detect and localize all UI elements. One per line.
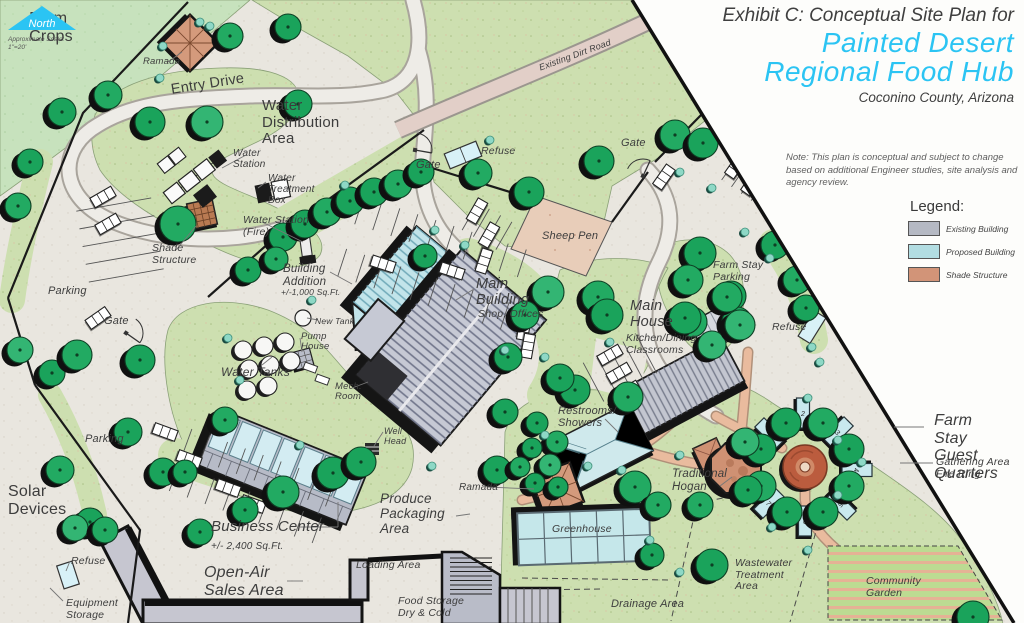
shade-structure-swatch [908,267,940,282]
project-name-line1: Painted Desert [614,28,1014,57]
project-location: Coconino County, Arizona [614,91,1014,105]
greenhouse-structure [511,503,653,566]
legend: Legend: Existing Building Proposed Build… [876,198,1015,290]
scale-value: 1"=20' [8,44,27,51]
exhibit-title: Exhibit C: Conceptual Site Plan for [614,6,1014,26]
legend-label-existing: Existing Building [946,224,1008,234]
legend-label-proposed: Proposed Building [946,247,1015,257]
north-label: North [29,18,56,30]
title-block: Exhibit C: Conceptual Site Plan for Pain… [614,6,1014,105]
project-name-line2: Regional Food Hub [614,57,1014,86]
legend-item-shade: Shade Structure [876,267,1015,282]
legend-item-existing: Existing Building [876,221,1015,236]
scale-label: Approximate Scale: [7,36,65,43]
cabin-number-2: 2 [800,411,805,418]
site-plan-canvas: 1234567 Farm CropsRamadaEntry DriveWater… [0,0,1024,623]
disclaimer-note: Note: This plan is conceptual and subjec… [786,152,1024,190]
existing-building-swatch [908,221,940,236]
north-arrow: North Approximate Scale: 1"=20' [0,0,95,60]
legend-heading: Legend: [910,198,1015,215]
legend-item-proposed: Proposed Building [876,244,1015,259]
legend-label-shade: Shade Structure [946,270,1007,280]
proposed-building-swatch [908,244,940,259]
